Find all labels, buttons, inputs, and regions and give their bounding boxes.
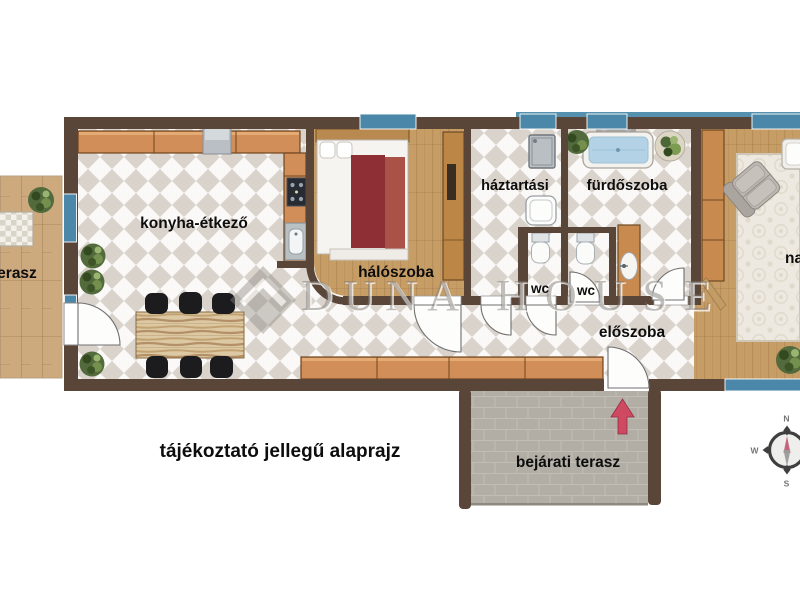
svg-text:terasz: terasz	[0, 265, 37, 282]
svg-text:W: W	[750, 446, 759, 456]
svg-text:nappali: nappali	[785, 250, 800, 267]
svg-text:háztartási: háztartási	[481, 178, 549, 194]
svg-text:S: S	[784, 479, 790, 489]
svg-text:wc: wc	[530, 281, 550, 296]
svg-text:fürdőszoba: fürdőszoba	[587, 177, 668, 194]
svg-text:bejárati terasz: bejárati terasz	[516, 454, 620, 471]
svg-text:tájékoztató jellegű alaprajz: tájékoztató jellegű alaprajz	[160, 441, 401, 462]
svg-text:előszoba: előszoba	[599, 324, 666, 341]
svg-text:N: N	[783, 414, 789, 424]
svg-text:wc: wc	[576, 283, 596, 298]
svg-text:konyha-étkező: konyha-étkező	[140, 215, 248, 232]
svg-text:hálószoba: hálószoba	[358, 264, 434, 281]
